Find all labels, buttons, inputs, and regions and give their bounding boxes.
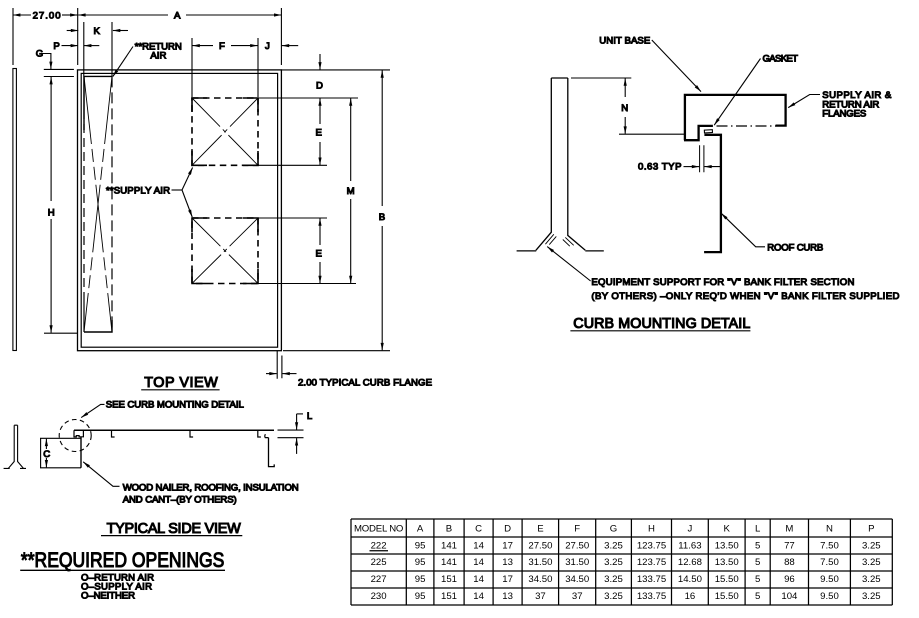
svg-text:9.50: 9.50 (820, 591, 839, 602)
svg-text:H: H (48, 208, 55, 219)
svg-text:104: 104 (781, 591, 798, 602)
svg-text:D: D (504, 524, 511, 535)
svg-text:95: 95 (415, 574, 426, 585)
svg-text:3.25: 3.25 (604, 574, 623, 585)
svg-text:13.50: 13.50 (715, 557, 739, 568)
svg-text:3.25: 3.25 (862, 540, 881, 551)
svg-text:F: F (219, 41, 225, 52)
svg-text:16: 16 (685, 591, 696, 602)
svg-text:133.75: 133.75 (637, 591, 666, 602)
svg-text:M: M (785, 524, 793, 535)
svg-text:95: 95 (415, 591, 426, 602)
svg-text:225: 225 (371, 557, 387, 568)
svg-text:31.50: 31.50 (528, 557, 552, 568)
svg-text:5: 5 (755, 591, 760, 602)
svg-text:FLANGES: FLANGES (822, 109, 866, 120)
svg-text:J: J (265, 41, 270, 52)
svg-text:3.25: 3.25 (862, 574, 881, 585)
svg-text:P: P (53, 41, 59, 52)
svg-text:J: J (688, 524, 693, 535)
svg-text:EQUIPMENT SUPPORT FOR "V" BANK: EQUIPMENT SUPPORT FOR "V" BANK FILTER SE… (591, 277, 854, 288)
svg-text:227: 227 (371, 574, 387, 585)
svg-text:GASKET: GASKET (763, 53, 799, 64)
svg-text:(BY OTHERS) –ONLY REQ’D WHEN ": (BY OTHERS) –ONLY REQ’D WHEN "V" BANK FI… (591, 291, 899, 302)
svg-text:B: B (379, 212, 385, 223)
svg-text:K: K (94, 26, 101, 37)
svg-text:5: 5 (755, 574, 760, 585)
svg-text:14: 14 (473, 557, 484, 568)
svg-text:CURB MOUNTING DETAIL: CURB MOUNTING DETAIL (573, 316, 750, 332)
svg-text:3.25: 3.25 (862, 557, 881, 568)
svg-text:WOOD NAILER, ROOFING, INSULATI: WOOD NAILER, ROOFING, INSULATION (123, 483, 299, 494)
svg-text:M: M (347, 186, 355, 197)
svg-text:34.50: 34.50 (565, 574, 589, 585)
svg-text:37: 37 (572, 591, 583, 602)
svg-text:**SUPPLY AIR: **SUPPLY AIR (106, 186, 170, 197)
svg-text:13: 13 (502, 591, 513, 602)
svg-text:27.50: 27.50 (528, 540, 552, 551)
svg-text:14: 14 (473, 540, 484, 551)
svg-text:95: 95 (415, 557, 426, 568)
svg-text:3.25: 3.25 (604, 557, 623, 568)
svg-text:B: B (446, 524, 452, 535)
svg-text:34.50: 34.50 (528, 574, 552, 585)
svg-text:5: 5 (755, 540, 760, 551)
svg-text:15.50: 15.50 (715, 591, 739, 602)
svg-text:9.50: 9.50 (820, 574, 839, 585)
svg-text:H: H (648, 524, 655, 535)
svg-text:MODEL NO: MODEL NO (354, 524, 403, 535)
svg-text:141: 141 (441, 540, 457, 551)
svg-text:AIR: AIR (150, 51, 166, 62)
svg-text:15.50: 15.50 (715, 574, 739, 585)
svg-text:N: N (621, 103, 628, 114)
svg-text:**REQUIRED OPENINGS: **REQUIRED OPENINGS (21, 549, 224, 573)
svg-text:E: E (316, 128, 322, 139)
svg-text:3.25: 3.25 (604, 591, 623, 602)
svg-text:14: 14 (473, 591, 484, 602)
svg-text:151: 151 (441, 591, 457, 602)
svg-text:O–NEITHER: O–NEITHER (81, 591, 135, 602)
svg-text:G: G (610, 524, 617, 535)
svg-text:E: E (537, 524, 543, 535)
svg-text:12.68: 12.68 (678, 557, 702, 568)
svg-text:141: 141 (441, 557, 457, 568)
svg-text:95: 95 (415, 540, 426, 551)
svg-text:77: 77 (784, 540, 795, 551)
svg-text:0.63 TYP: 0.63 TYP (638, 162, 682, 173)
svg-text:A: A (174, 11, 181, 22)
svg-text:AND CANT–(BY OTHERS): AND CANT–(BY OTHERS) (123, 494, 237, 505)
svg-text:230: 230 (371, 591, 387, 602)
svg-text:88: 88 (784, 557, 795, 568)
svg-text:13.50: 13.50 (715, 540, 739, 551)
svg-text:37: 37 (535, 591, 546, 602)
svg-text:5: 5 (755, 557, 760, 568)
svg-text:E: E (316, 249, 322, 260)
svg-text:27.00: 27.00 (33, 11, 61, 22)
svg-text:14: 14 (473, 574, 484, 585)
svg-text:17: 17 (502, 574, 513, 585)
svg-text:133.75: 133.75 (637, 574, 666, 585)
svg-text:F: F (574, 524, 580, 535)
svg-text:TOP VIEW: TOP VIEW (144, 375, 218, 391)
svg-text:C: C (475, 524, 482, 535)
svg-text:C: C (43, 449, 50, 460)
svg-text:UNIT BASE: UNIT BASE (599, 35, 650, 46)
svg-text:G: G (36, 49, 43, 60)
svg-text:31.50: 31.50 (565, 557, 589, 568)
svg-text:17: 17 (502, 540, 513, 551)
svg-text:SEE CURB MOUNTING DETAIL: SEE CURB MOUNTING DETAIL (106, 400, 245, 411)
svg-text:222: 222 (371, 540, 387, 551)
svg-text:13: 13 (502, 557, 513, 568)
svg-text:P: P (868, 524, 874, 535)
svg-text:L: L (307, 411, 313, 422)
svg-text:7.50: 7.50 (820, 540, 839, 551)
svg-text:151: 151 (441, 574, 457, 585)
svg-text:96: 96 (784, 574, 795, 585)
svg-text:D: D (316, 81, 323, 92)
svg-text:A: A (417, 524, 424, 535)
svg-text:7.50: 7.50 (820, 557, 839, 568)
svg-text:27.50: 27.50 (565, 540, 589, 551)
svg-text:3.25: 3.25 (862, 591, 881, 602)
svg-text:TYPICAL SIDE VIEW: TYPICAL SIDE VIEW (107, 521, 242, 537)
svg-text:3.25: 3.25 (604, 540, 623, 551)
svg-text:123.75: 123.75 (637, 557, 666, 568)
svg-text:ROOF CURB: ROOF CURB (767, 243, 823, 254)
svg-text:14.50: 14.50 (678, 574, 702, 585)
svg-text:K: K (723, 524, 730, 535)
svg-text:N: N (826, 524, 833, 535)
svg-text:2.00 TYPICAL CURB FLANGE: 2.00 TYPICAL CURB FLANGE (298, 378, 432, 389)
svg-text:11.63: 11.63 (678, 540, 701, 551)
svg-text:L: L (755, 524, 761, 535)
svg-text:123.75: 123.75 (637, 540, 666, 551)
